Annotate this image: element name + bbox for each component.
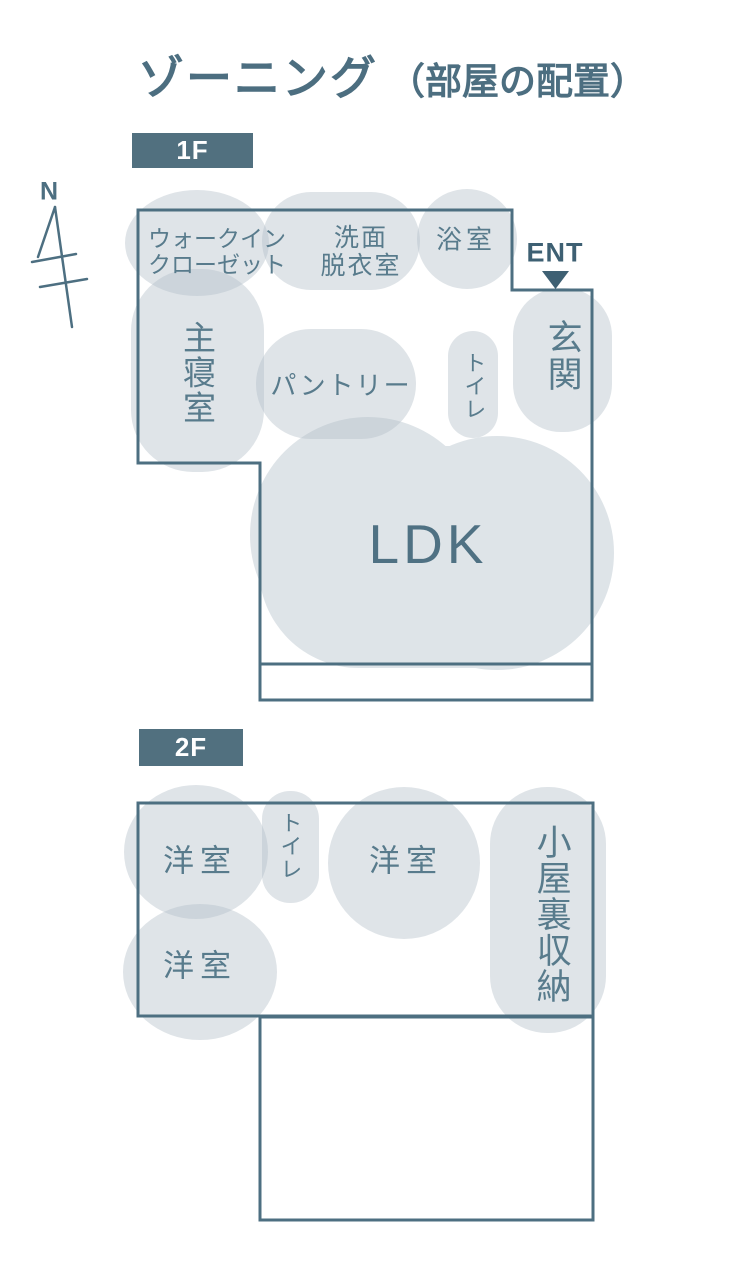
entrance-hall-label: 玄関: [542, 319, 581, 393]
entrance-marker-label: ENT: [527, 238, 584, 269]
western-room-1-label: 洋室: [163, 845, 237, 880]
master-bedroom-label: 主寝室: [178, 321, 215, 426]
floor2-lower-roof-outline: [260, 1017, 593, 1220]
bathroom-label: 浴室: [436, 225, 496, 254]
north-label: N: [40, 178, 58, 207]
western-room-2-label: 洋室: [369, 845, 443, 880]
floor-plan-canvas: [0, 0, 751, 1288]
washroom-label-line1: 洗面: [320, 224, 401, 252]
washroom-label: 洗面 脱衣室: [320, 224, 401, 280]
toilet-1f-label: トイレ: [461, 352, 486, 421]
walk-in-closet-label-line1: ウォークイン: [148, 226, 286, 252]
entrance-arrow-icon: [542, 271, 569, 289]
attic-storage-label: 小屋裏収納: [531, 824, 570, 1004]
north-arrow-icon: [32, 207, 87, 327]
page-title-main: ゾーニング: [138, 42, 378, 108]
toilet-2f-label: トイレ: [277, 812, 302, 881]
pantry-label: パントリー: [270, 371, 411, 400]
ldk-label: LDK: [369, 514, 488, 576]
walk-in-closet-label: ウォークイン クローゼット: [148, 226, 286, 278]
floor2-badge: 2F: [139, 729, 243, 766]
page-title-sub: （部屋の配置）: [388, 51, 647, 105]
washroom-label-line2: 脱衣室: [320, 252, 401, 280]
western-room-3-label: 洋室: [163, 950, 237, 985]
page-title: ゾーニング （部屋の配置）: [138, 42, 647, 108]
floor1-badge: 1F: [132, 133, 253, 168]
walk-in-closet-label-line2: クローゼット: [148, 252, 286, 278]
zoning-diagram-page: ゾーニング （部屋の配置） N 1F 2F ENT ウォークイン クローゼット …: [0, 0, 751, 1288]
